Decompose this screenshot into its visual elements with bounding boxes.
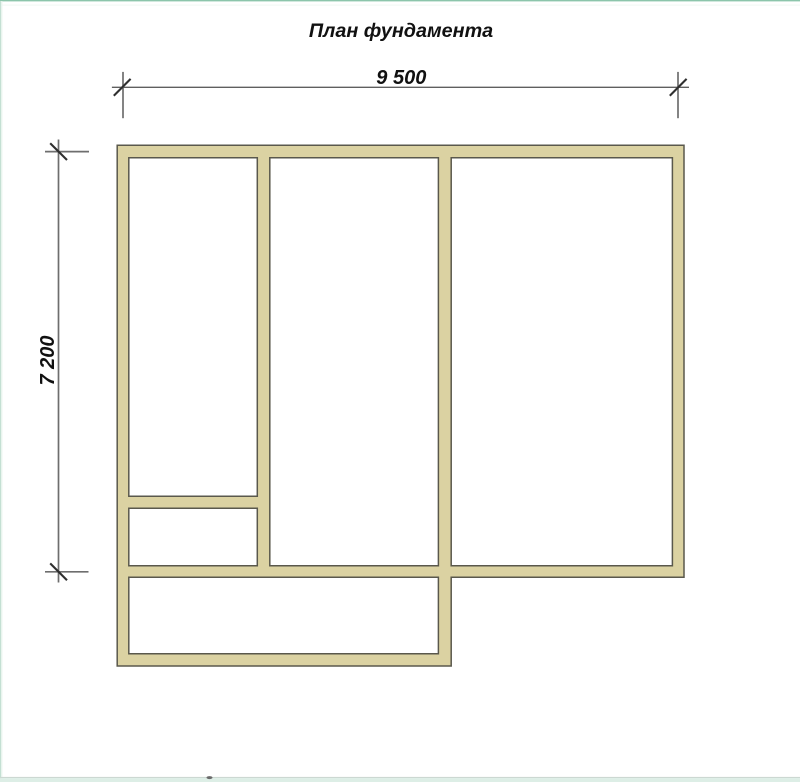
svg-text:План фундамента: План фундамента (309, 20, 493, 42)
svg-text:9 500: 9 500 (376, 67, 426, 89)
svg-text:7 200: 7 200 (37, 335, 59, 385)
